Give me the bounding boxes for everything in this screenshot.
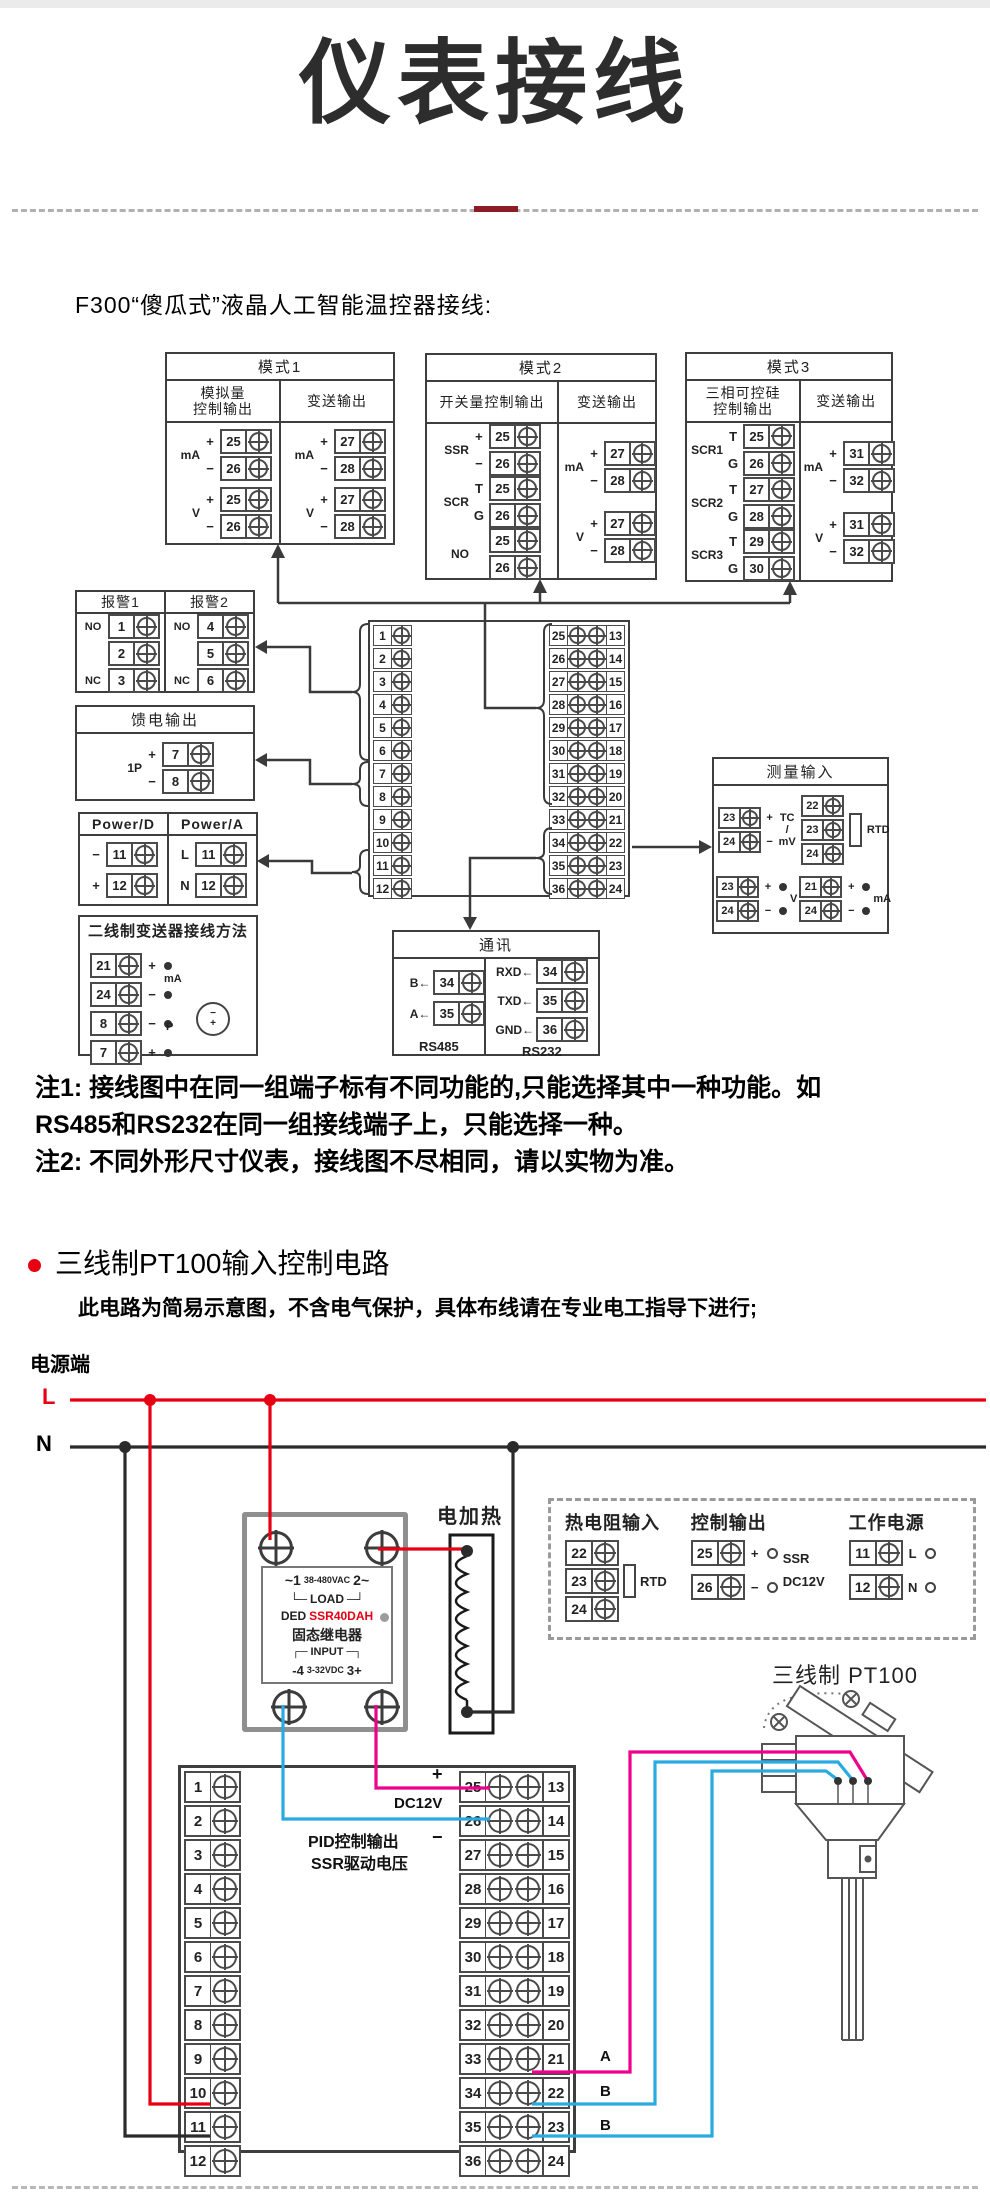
- terminal-number: 25: [461, 1773, 486, 1801]
- terminal-row: +23: [716, 876, 787, 898]
- screw-terminal-icon: [363, 459, 382, 478]
- terminal-cell: 24: [718, 831, 761, 853]
- terminal: 1: [184, 1771, 241, 1803]
- terminal: 8: [373, 786, 412, 807]
- terminal-number: 24: [567, 1598, 593, 1620]
- terminal-number: 11: [374, 856, 392, 875]
- terminal-number: 28: [550, 695, 568, 714]
- terminal-number: 31: [845, 443, 870, 464]
- terminal-row: NC3: [81, 668, 160, 693]
- terminal: 11: [184, 2111, 241, 2143]
- terminal-number: 5: [186, 1909, 211, 1937]
- screw-terminal-icon: [516, 1979, 540, 2003]
- screw-terminal-icon: [516, 2115, 540, 2139]
- section2-subtitle: 此电路为简易示意图，不含电气保护，具体布线请在专业电工指导下进行;: [78, 1292, 757, 1322]
- wire-pt100-b1: [532, 1762, 851, 2104]
- terminal-number: 20: [606, 787, 624, 806]
- polarity-label: +: [826, 446, 840, 461]
- terminal-group: NO 2526: [443, 528, 541, 580]
- screw-terminal-icon: [518, 531, 537, 550]
- heater-label: 电加热: [437, 1500, 503, 1529]
- terminal-number: 12: [851, 1576, 877, 1598]
- terminal-cell: 28: [334, 456, 386, 481]
- rtd-resistor-icon: [849, 813, 862, 847]
- terminal-row: NC6: [170, 668, 249, 693]
- polarity-label: T: [472, 481, 486, 496]
- heater-element: [450, 1535, 493, 1733]
- dc12v-label: DC12V: [394, 1795, 442, 1812]
- wire-pt100-b2: [532, 1771, 838, 2136]
- screw-terminal-icon: [393, 788, 410, 805]
- terminal-group: mA +27−28: [558, 441, 656, 493]
- terminal-strip-right: 2513261427152816291730183119322033213422…: [459, 1771, 570, 2147]
- screw-terminal-icon: [226, 617, 245, 636]
- terminal-number: 36: [550, 879, 568, 898]
- page: 仪表接线 F300“傻瓜式”液晶人工智能温控器接线: 模式1 模拟量控制输出 m…: [0, 0, 990, 2203]
- terminal-row: T29: [726, 529, 795, 554]
- terminal-pair: 3220: [549, 786, 625, 807]
- terminal-number: 28: [745, 506, 770, 527]
- terminal-number: 14: [542, 1807, 568, 1835]
- terminal-number: 26: [745, 453, 770, 474]
- terminal-number: 29: [550, 718, 568, 737]
- terminal: 9: [184, 2043, 241, 2075]
- screw-terminal-icon: [259, 1531, 293, 1565]
- terminal-number: 12: [374, 879, 392, 898]
- terminal-cell: 27: [743, 477, 795, 502]
- screw-terminal-icon: [823, 903, 839, 919]
- line-label: N: [906, 1580, 920, 1595]
- polarity-label: +: [826, 517, 840, 532]
- line-label: L: [906, 1546, 920, 1561]
- screw-terminal-icon: [588, 696, 605, 713]
- transmitter-icon: −+: [196, 1002, 230, 1036]
- terminal-group: mA +31−32: [797, 441, 895, 493]
- terminal-row: −26: [691, 1574, 778, 1600]
- note1-line2: RS485和RS232在同一组接线端子上，只能选择一种。: [35, 1107, 965, 1144]
- screw-terminal-icon: [772, 507, 791, 526]
- current-input-group: +21−24 mA: [799, 872, 891, 928]
- terminal: 12: [184, 2145, 241, 2177]
- polarity-label: −: [89, 847, 103, 862]
- terminal-cell: 28: [604, 468, 656, 493]
- terminal-number: 26: [491, 453, 516, 474]
- screw-terminal-icon: [393, 811, 410, 828]
- screw-terminal-icon: [588, 627, 605, 644]
- screw-terminal-icon: [569, 650, 586, 667]
- terminal-cell: 12: [106, 873, 158, 898]
- screw-terminal-icon: [393, 627, 410, 644]
- terminal-cell: 1: [108, 614, 160, 639]
- section2-title: 三线制PT100输入控制电路: [55, 1242, 390, 1282]
- terminal-group: V +25−26: [174, 487, 272, 539]
- screw-terminal-icon: [119, 956, 138, 975]
- terminal-number: 2: [110, 643, 135, 664]
- polarity-label: +: [762, 881, 774, 893]
- screw-terminal-icon: [249, 459, 268, 478]
- page-title: 仪表接线: [0, 34, 990, 135]
- mode2-box: 模式2 开关量控制输出 SSR +25−26 SCR T25G26 NO 252…: [425, 353, 657, 580]
- polarity-label: −: [587, 473, 601, 488]
- terminal-number: 19: [606, 764, 624, 783]
- terminal-cell: 11: [849, 1540, 903, 1566]
- terminal-row: 23: [801, 819, 844, 841]
- screw-terminal-icon: [772, 454, 791, 473]
- power-terminal-label: 电源端: [30, 1348, 90, 1377]
- terminal-row: −8: [90, 1011, 172, 1036]
- screw-terminal-icon: [588, 880, 605, 897]
- terminal-group: SCR1 T25G26: [691, 424, 795, 476]
- terminal-number: 4: [374, 695, 392, 714]
- terminal-strip-left: 123456789101112: [373, 625, 412, 892]
- mode2-title: 模式2: [427, 355, 655, 382]
- terminal-cell: 27: [334, 487, 386, 512]
- screw-terminal-icon: [588, 742, 605, 759]
- control-output-group: 控制输出 +25−26 SSRDC12V: [691, 1509, 825, 1629]
- screw-terminal-icon: [721, 1577, 741, 1597]
- ssr-model: SSR40DAH: [309, 1610, 373, 1622]
- terminal-pair: 2715: [459, 1839, 570, 1871]
- rs485-caption: RS485: [419, 1037, 459, 1056]
- terminal-cell: 7: [162, 742, 214, 767]
- screw-terminal-icon: [213, 1945, 237, 1969]
- screw-terminal-icon: [569, 719, 586, 736]
- screw-terminal-icon: [137, 644, 156, 663]
- screw-terminal-icon: [565, 1020, 584, 1039]
- rtd-label: RTD: [640, 1574, 667, 1589]
- terminal-cell: 12: [195, 873, 247, 898]
- polarity-label: +: [587, 516, 601, 531]
- column-header: 开关量控制输出: [427, 382, 557, 424]
- polarity-label: L: [178, 847, 192, 862]
- screw-terminal-icon: [721, 1543, 741, 1563]
- terminal-row: N12: [849, 1574, 936, 1600]
- terminal-number: 13: [606, 626, 624, 645]
- screw-terminal-icon: [213, 1911, 237, 1935]
- terminal-cell: 32: [843, 539, 895, 564]
- terminal-number: 16: [542, 1875, 568, 1903]
- terminal-row: T27: [726, 477, 795, 502]
- terminal-number: 23: [803, 821, 824, 839]
- terminal-pair: 2816: [459, 1873, 570, 1905]
- rtd-input-group: 热电阻输入 222324 RTD: [565, 1509, 667, 1629]
- screw-terminal-icon: [488, 1945, 512, 1969]
- terminal-row: −8: [145, 769, 214, 794]
- screw-terminal-icon: [516, 1809, 540, 1833]
- screw-terminal-icon: [872, 542, 891, 561]
- terminal-row: +25: [203, 487, 272, 512]
- terminal-cell: 25: [220, 487, 272, 512]
- terminal-pair: 3119: [549, 763, 625, 784]
- terminal-cell: 23: [565, 1568, 619, 1594]
- terminal-number: 24: [720, 833, 741, 851]
- terminal-number: 12: [197, 875, 222, 896]
- alarm2-title: 报警2: [166, 592, 253, 614]
- terminal-number: 28: [606, 540, 631, 561]
- screw-terminal-icon: [393, 696, 410, 713]
- terminal-number: 24: [801, 902, 822, 920]
- terminal-cell: 26: [489, 503, 541, 528]
- terminal-pair: 3321: [549, 809, 625, 830]
- terminal-number: 11: [108, 844, 133, 865]
- screw-terminal-icon: [872, 471, 891, 490]
- terminal-pair: 3624: [459, 2145, 570, 2177]
- terminal-cell: 25: [220, 429, 272, 454]
- terminal-number: 24: [542, 2147, 568, 2175]
- screw-terminal-icon: [393, 857, 410, 874]
- screw-terminal-icon: [488, 2047, 512, 2071]
- terminal-number: 34: [435, 972, 460, 993]
- terminal-pair: 3018: [549, 740, 625, 761]
- screw-terminal-icon: [588, 857, 605, 874]
- terminal-number: 22: [803, 797, 824, 815]
- wire-pt100-a: [532, 1752, 866, 2072]
- polarity-label: −: [748, 1580, 762, 1595]
- terminal-number: 23: [718, 878, 739, 896]
- terminal-number: 15: [606, 672, 624, 691]
- terminal-cell: 26: [220, 456, 272, 481]
- terminal-cell: 36: [536, 1017, 588, 1042]
- polarity-label: +: [764, 812, 776, 824]
- screw-terminal-icon: [365, 1690, 399, 1724]
- screw-terminal-icon: [213, 1843, 237, 1867]
- polarity-label: N: [178, 878, 192, 893]
- terminal-number: 31: [845, 514, 870, 535]
- terminal-cell: 26: [743, 451, 795, 476]
- terminal: 1: [373, 625, 412, 646]
- terminal-number: 32: [845, 470, 870, 491]
- terminal-number: 21: [92, 955, 117, 976]
- terminal-number: 36: [461, 2147, 486, 2175]
- terminal-row: +27: [317, 429, 386, 454]
- screw-terminal-icon: [224, 845, 243, 864]
- screw-terminal-icon: [742, 810, 758, 826]
- alarm2-column: 报警2 NO45NC6: [164, 592, 253, 691]
- minus-label: −: [432, 1827, 443, 1848]
- terminal-row: −28: [587, 468, 656, 493]
- terminal-row: −26: [203, 456, 272, 481]
- screw-terminal-icon: [363, 432, 382, 451]
- screw-terminal-icon: [569, 857, 586, 874]
- wire-a-label: A: [600, 2048, 611, 2065]
- terminal-number: 30: [745, 558, 770, 579]
- terminal-number: 1: [110, 616, 135, 637]
- terminal: 3: [373, 671, 412, 692]
- terminal-pair: 3018: [459, 1941, 570, 1973]
- terminal-number: 2: [374, 649, 392, 668]
- screw-terminal-icon: [135, 845, 154, 864]
- screw-terminal-icon: [213, 1809, 237, 1833]
- terminal-number: 14: [606, 649, 624, 668]
- mode1-retransmission-column: 变送输出 mA +27−28 V +27−28: [279, 381, 393, 545]
- terminal-number: 8: [164, 771, 189, 792]
- screw-terminal-icon: [772, 532, 791, 551]
- terminal-group: SSR +25−26: [443, 424, 541, 476]
- terminal-row: B←34: [392, 970, 485, 995]
- terminal-pair: 3220: [459, 2009, 570, 2041]
- pt100-sensor: [762, 1686, 933, 2040]
- notes: 注1: 接线图中在同一组端子标有不同功能的,只能选择其中一种功能。如 RS485…: [35, 1070, 965, 1181]
- polarity-label: −: [762, 905, 774, 917]
- terminal-cell: 26: [489, 451, 541, 476]
- terminal-number: 26: [222, 458, 247, 479]
- terminal-number: 27: [550, 672, 568, 691]
- terminal-number: 1: [186, 1773, 211, 1801]
- terminal-number: 19: [542, 1977, 568, 2005]
- terminal-number: 26: [461, 1807, 486, 1835]
- mode3-box: 模式3 三相可控硅控制输出 SCR1 T25G26 SCR2 T27G28 SC…: [685, 352, 893, 582]
- screw-terminal-icon: [393, 719, 410, 736]
- terminal-cell: 27: [334, 429, 386, 454]
- screw-terminal-icon: [740, 903, 756, 919]
- terminal-cell: 21: [90, 953, 142, 978]
- screw-terminal-icon: [569, 742, 586, 759]
- terminal-pair: 3523: [459, 2111, 570, 2143]
- terminal-group: SCR3 T29G30: [691, 529, 795, 581]
- terminal-cell: 26: [220, 514, 272, 539]
- terminal-number: 35: [538, 990, 563, 1011]
- terminal-number: 16: [606, 695, 624, 714]
- polarity-label: −: [826, 544, 840, 559]
- terminal-pair: 3624: [549, 878, 625, 899]
- screw-terminal-icon: [588, 673, 605, 690]
- screw-terminal-icon: [569, 673, 586, 690]
- terminal-pair: 3321: [459, 2043, 570, 2075]
- screw-terminal-icon: [588, 811, 605, 828]
- terminal-number: 29: [745, 531, 770, 552]
- terminal-group: mA +27−28: [288, 429, 386, 481]
- ma-label: mA: [164, 973, 182, 985]
- signal-label: B←: [392, 976, 430, 990]
- terminal-pair: 3422: [459, 2077, 570, 2109]
- terminal-cell: 35: [536, 988, 588, 1013]
- screw-terminal-icon: [879, 1543, 899, 1563]
- voltage-input-group: +23−24 V: [716, 872, 797, 928]
- terminal-number: 28: [461, 1875, 486, 1903]
- screw-terminal-icon: [633, 514, 652, 533]
- polarity-label: −: [845, 905, 857, 917]
- screw-terminal-icon: [569, 627, 586, 644]
- terminal-number: 17: [606, 718, 624, 737]
- v-label: V: [790, 893, 797, 905]
- screw-terminal-icon: [518, 479, 537, 498]
- terminal-cell: 27: [604, 441, 656, 466]
- terminal-number: 6: [199, 670, 224, 691]
- terminal-cell: 24: [801, 843, 844, 865]
- terminal-pair: 2513: [549, 625, 625, 646]
- screw-terminal-icon: [565, 991, 584, 1010]
- screw-terminal-icon: [569, 880, 586, 897]
- terminal-pair: 2917: [549, 717, 625, 738]
- terminal-number: 5: [374, 718, 392, 737]
- terminal-row: +7: [90, 1040, 172, 1065]
- screw-terminal-icon: [516, 2013, 540, 2037]
- rtd-label: RTD: [867, 824, 890, 836]
- bottom-terminal-block: 123456789101112 251326142715281629173018…: [178, 1765, 576, 2153]
- screw-terminal-icon: [516, 2081, 540, 2105]
- terminal: 6: [184, 1941, 241, 1973]
- screw-terminal-icon: [365, 1531, 399, 1565]
- terminal-number: 27: [336, 489, 361, 510]
- terminal-number: 33: [461, 2045, 486, 2073]
- terminal-number: 30: [550, 741, 568, 760]
- terminal-number: 25: [222, 431, 247, 452]
- terminal-number: 21: [801, 878, 822, 896]
- screw-terminal-icon: [823, 879, 839, 895]
- screw-terminal-icon: [588, 650, 605, 667]
- terminal-number: 23: [567, 1570, 593, 1592]
- terminal-cell: 8: [162, 769, 214, 794]
- terminal-row: 24: [801, 843, 844, 865]
- terminal-number: 27: [606, 513, 631, 534]
- top-gray-bar: [0, 0, 990, 8]
- terminal-number: 32: [845, 541, 870, 562]
- terminal-number: 7: [92, 1042, 117, 1063]
- screw-terminal-icon: [224, 876, 243, 895]
- terminal-row: 5: [170, 641, 249, 666]
- bottom-dashed-separator: [12, 2186, 978, 2189]
- mode1-box: 模式1 模拟量控制输出 mA +25−26 V +25−26 变送输出 mA +…: [165, 352, 395, 545]
- screw-terminal-icon: [119, 1014, 138, 1033]
- signal-label: A←: [392, 1007, 430, 1021]
- terminal-row: +31: [826, 512, 895, 537]
- column-header: 变送输出: [281, 381, 393, 423]
- terminal-strip-left: 123456789101112: [184, 1771, 241, 2147]
- terminal-number: 12: [186, 2147, 211, 2175]
- terminal-group: 1P +7−8: [116, 742, 214, 794]
- polarity-label: T: [726, 534, 740, 549]
- mode3-retransmission-column: 变送输出 mA +31−32 V +31−32: [799, 381, 891, 582]
- terminal-cell: 25: [489, 476, 541, 501]
- polarity-label: T: [726, 482, 740, 497]
- screw-terminal-icon: [213, 1877, 237, 1901]
- terminal-number: 24: [606, 879, 624, 898]
- screw-terminal-icon: [226, 644, 245, 663]
- screw-terminal-icon: [742, 834, 758, 850]
- terminal-number: 24: [803, 845, 824, 863]
- terminal-cell: 24: [565, 1596, 619, 1622]
- polarity-label: +: [317, 492, 331, 507]
- screw-terminal-icon: [518, 454, 537, 473]
- screw-terminal-icon: [825, 822, 841, 838]
- terminal-number: 34: [461, 2079, 486, 2107]
- screw-terminal-icon: [872, 515, 891, 534]
- terminal-number: 29: [461, 1909, 486, 1937]
- terminal-row: A←35: [392, 1001, 485, 1026]
- screw-terminal-icon: [213, 1775, 237, 1799]
- screw-terminal-icon: [569, 811, 586, 828]
- terminal-cell: 21: [799, 876, 842, 898]
- note1-line1: 注1: 接线图中在同一组端子标有不同功能的,只能选择其中一种功能。如: [35, 1070, 965, 1107]
- terminal-number: 10: [186, 2079, 211, 2107]
- terminal-cell: 22: [801, 795, 844, 817]
- terminal-cell: 28: [743, 504, 795, 529]
- terminal: 4: [184, 1873, 241, 1905]
- terminal-number: 31: [461, 1977, 486, 2005]
- terminal-row: −28: [317, 514, 386, 539]
- screw-terminal-icon: [272, 1690, 306, 1724]
- screw-terminal-icon: [872, 444, 891, 463]
- terminal-cell: 34: [433, 970, 485, 995]
- note2: 注2: 不同外形尺寸仪表，接线图不尽相同，请以实物为准。: [35, 1144, 965, 1181]
- screw-terminal-icon: [588, 834, 605, 851]
- alarm1-column: 报警1 NO12NC3: [77, 592, 164, 691]
- screw-terminal-icon: [569, 788, 586, 805]
- screw-terminal-icon: [119, 985, 138, 1004]
- terminal: 9: [373, 809, 412, 830]
- terminal-row: L11: [178, 842, 247, 867]
- screw-terminal-icon: [488, 1775, 512, 1799]
